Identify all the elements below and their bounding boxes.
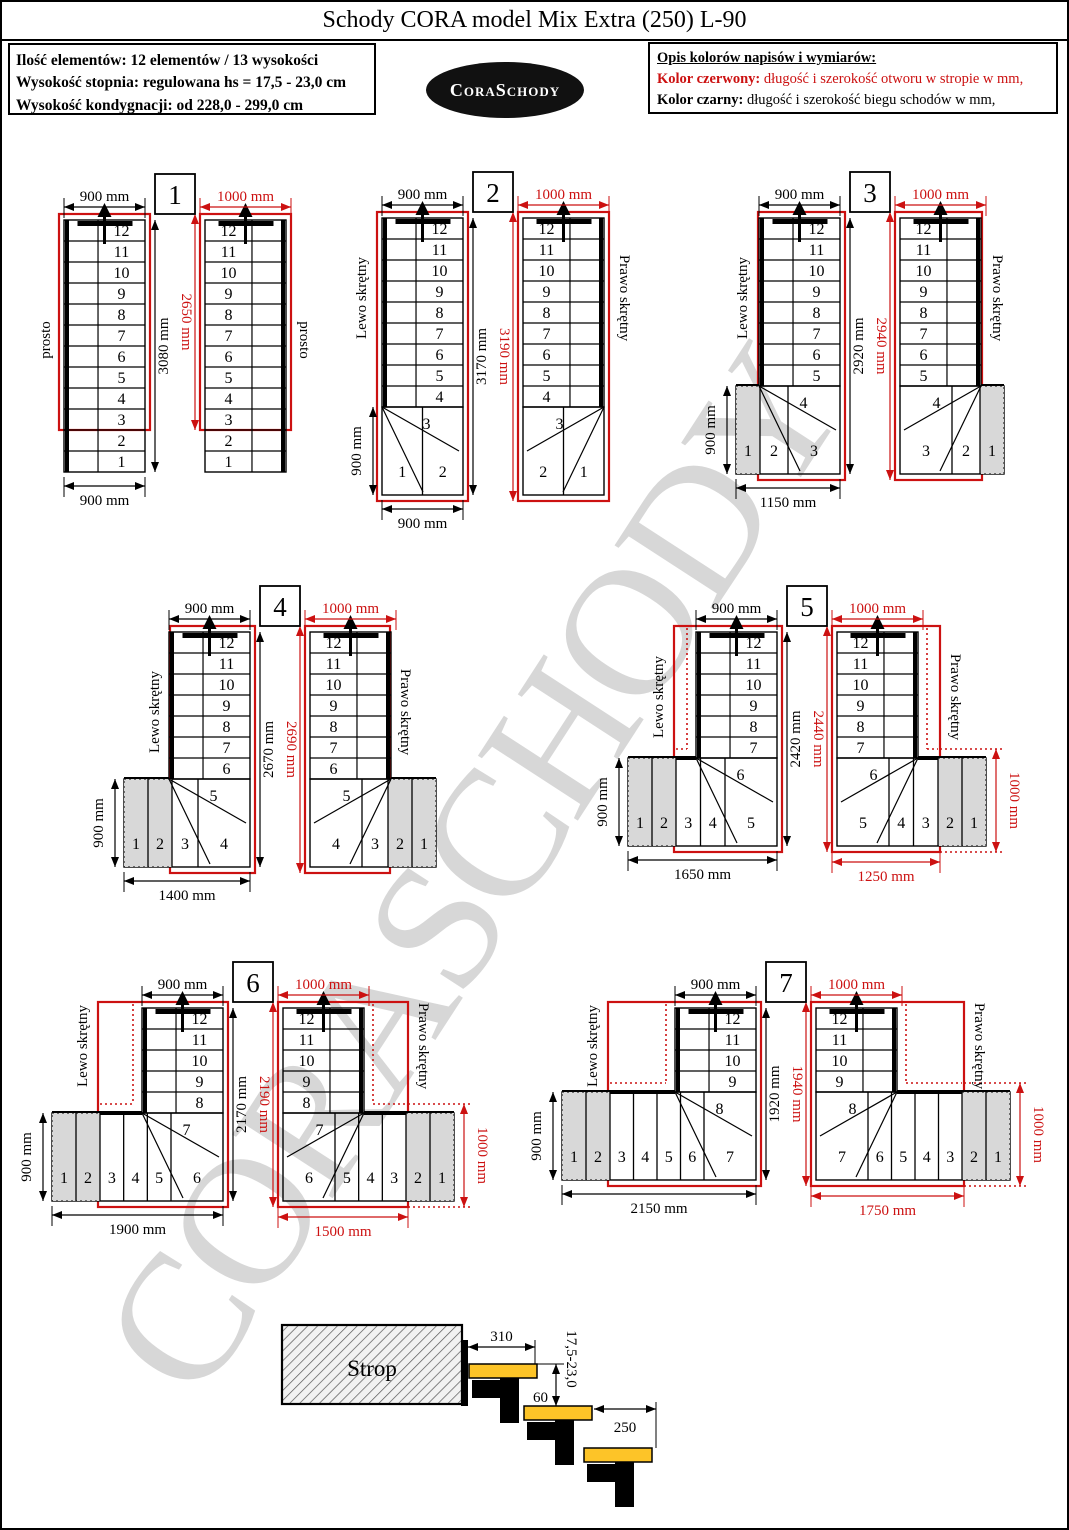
svg-text:5: 5 [859, 815, 867, 832]
svg-text:8: 8 [813, 305, 821, 322]
svg-text:8: 8 [224, 307, 232, 324]
svg-text:11: 11 [432, 242, 447, 259]
svg-text:8: 8 [542, 305, 550, 322]
svg-text:Lewo skrętny: Lewo skrętny [75, 1004, 91, 1087]
svg-text:2: 2 [970, 1149, 978, 1166]
svg-text:Lewo skrętny: Lewo skrętny [354, 256, 370, 339]
svg-text:8: 8 [302, 1095, 310, 1112]
svg-text:3: 3 [108, 1170, 116, 1187]
svg-text:9: 9 [196, 1074, 204, 1091]
legend-box: Opis kolorów napisów i wymiarów: Kolor c… [648, 42, 1058, 114]
svg-text:2440 mm: 2440 mm [810, 710, 826, 767]
svg-text:5: 5 [899, 1149, 907, 1166]
svg-text:6: 6 [118, 349, 126, 366]
svg-text:2: 2 [156, 836, 164, 853]
stair-diagram-6: 121110981234567900 mm1900 mm900 mm2170 m… [24, 958, 524, 1270]
svg-text:1: 1 [398, 464, 406, 481]
svg-text:3: 3 [224, 412, 232, 429]
svg-text:9: 9 [224, 286, 232, 303]
info-box: Ilość elementów: 12 elementów / 13 wysok… [8, 43, 376, 115]
left-stair: 121110987123456900 mm1650 mm900 mm2420 m… [595, 601, 831, 883]
svg-text:4: 4 [436, 389, 444, 406]
svg-text:3: 3 [922, 815, 930, 832]
svg-text:1: 1 [994, 1149, 1002, 1166]
svg-text:2: 2 [414, 1170, 422, 1187]
stair-diagram-3: 121110987651234900 mm1150 mm900 mm2920 m… [708, 168, 1060, 544]
svg-text:900 mm: 900 mm [398, 516, 448, 532]
svg-text:11: 11 [326, 656, 341, 673]
svg-text:11: 11 [539, 242, 554, 259]
svg-text:7: 7 [813, 326, 821, 343]
svg-text:3080 mm: 3080 mm [156, 317, 172, 374]
svg-text:4: 4 [897, 815, 905, 832]
svg-text:4: 4 [367, 1170, 375, 1187]
svg-text:5: 5 [665, 1149, 673, 1166]
svg-text:1: 1 [744, 443, 752, 460]
left-stair: 121110981234567900 mm1900 mm900 mm2170 m… [19, 977, 277, 1238]
svg-text:1000 mm: 1000 mm [849, 601, 906, 617]
svg-text:11: 11 [299, 1032, 314, 1049]
svg-text:7: 7 [223, 740, 231, 757]
svg-text:5: 5 [224, 370, 232, 387]
svg-text:900 mm: 900 mm [398, 187, 448, 203]
svg-text:3: 3 [922, 443, 930, 460]
svg-text:7: 7 [224, 328, 232, 345]
svg-text:1: 1 [420, 836, 428, 853]
svg-text:8: 8 [919, 305, 927, 322]
svg-text:8: 8 [118, 307, 126, 324]
svg-text:1: 1 [570, 1149, 578, 1166]
svg-text:Prawo skrętny: Prawo skrętny [397, 669, 413, 756]
svg-text:Lewo skrętny: Lewo skrętny [651, 655, 667, 738]
svg-text:1150 mm: 1150 mm [760, 495, 817, 511]
svg-text:6: 6 [193, 1170, 201, 1187]
legend-heading: Opis kolorów napisów i wymiarów: [657, 48, 1049, 69]
svg-text:10: 10 [219, 677, 235, 694]
svg-text:Lewo skrętny: Lewo skrętny [585, 1004, 601, 1087]
svg-text:1: 1 [118, 454, 126, 471]
svg-text:10: 10 [915, 263, 931, 280]
svg-text:17,5-23,0: 17,5-23,0 [563, 1330, 579, 1388]
svg-text:2670 mm: 2670 mm [261, 721, 277, 778]
drawing-page: Schody CORA model Mix Extra (250) L-90 I… [0, 0, 1069, 1530]
svg-text:3: 3 [810, 443, 818, 460]
svg-text:4: 4 [332, 836, 340, 853]
diagram-number-box: 4 [260, 586, 300, 626]
svg-text:4: 4 [273, 592, 287, 622]
svg-text:3: 3 [946, 1149, 954, 1166]
svg-text:6: 6 [813, 347, 821, 364]
svg-text:2: 2 [594, 1149, 602, 1166]
svg-text:10: 10 [325, 677, 341, 694]
section-view: Strop3106017,5-23,0250 [282, 1325, 656, 1507]
svg-text:2420 mm: 2420 mm [788, 710, 804, 767]
svg-text:10: 10 [725, 1053, 741, 1070]
svg-text:900 mm: 900 mm [595, 777, 611, 827]
svg-text:10: 10 [220, 265, 236, 282]
svg-text:11: 11 [746, 656, 761, 673]
svg-text:8: 8 [196, 1095, 204, 1112]
info-line-step-height: Wysokość stopnia: regulowana hs = 17,5 -… [16, 72, 368, 94]
svg-text:prosto: prosto [38, 321, 54, 359]
svg-text:900 mm: 900 mm [80, 493, 130, 509]
svg-text:10: 10 [432, 263, 448, 280]
svg-text:2170 mm: 2170 mm [234, 1076, 250, 1133]
svg-text:4: 4 [923, 1149, 931, 1166]
svg-text:Prawo skrętny: Prawo skrętny [989, 255, 1005, 342]
diagram-number-box: 5 [787, 586, 827, 626]
svg-text:60: 60 [533, 1390, 548, 1406]
svg-text:1500 mm: 1500 mm [314, 1224, 371, 1240]
svg-text:5: 5 [813, 368, 821, 385]
svg-text:1000 mm: 1000 mm [828, 977, 885, 993]
svg-text:8: 8 [223, 719, 231, 736]
svg-text:1650 mm: 1650 mm [674, 867, 731, 883]
svg-text:1000 mm: 1000 mm [1030, 1106, 1046, 1163]
svg-text:2150 mm: 2150 mm [630, 1201, 687, 1217]
svg-text:7: 7 [779, 968, 793, 998]
svg-text:7: 7 [919, 326, 927, 343]
svg-text:11: 11 [114, 244, 129, 261]
svg-text:8: 8 [436, 305, 444, 322]
left-stair: 121110987654123900 mm900 mm900 mm3170 mm… [349, 187, 517, 532]
svg-text:900 mm: 900 mm [703, 405, 719, 455]
legend-red-line: Kolor czerwony: długość i szerokość otwo… [657, 69, 1049, 90]
svg-text:7: 7 [542, 326, 550, 343]
svg-text:5: 5 [436, 368, 444, 385]
svg-text:1: 1 [60, 1170, 68, 1187]
svg-text:6: 6 [876, 1149, 884, 1166]
svg-text:5: 5 [155, 1170, 163, 1187]
svg-text:9: 9 [729, 1074, 737, 1091]
svg-text:1: 1 [132, 836, 140, 853]
svg-text:1000 mm: 1000 mm [535, 187, 592, 203]
page-title: Schody CORA model Mix Extra (250) L-90 [2, 2, 1067, 41]
stair-diagram-1: 121110987654321900 mm900 mm3080 mm2650 m… [32, 170, 332, 546]
diagram-number-box: 1 [155, 174, 195, 214]
svg-text:4: 4 [118, 391, 126, 408]
svg-text:9: 9 [835, 1074, 843, 1091]
svg-text:1920 mm: 1920 mm [767, 1065, 783, 1122]
svg-text:11: 11 [809, 242, 824, 259]
svg-text:5: 5 [343, 1170, 351, 1187]
left-stair: 121110987651234900 mm1150 mm900 mm2920 m… [703, 187, 894, 511]
svg-text:Prawo skrętny: Prawo skrętny [415, 1003, 431, 1090]
svg-text:Prawo skrętny: Prawo skrętny [616, 255, 632, 342]
svg-text:11: 11 [916, 242, 931, 259]
info-line-storey-height: Wysokość kondygnacji: od 228,0 - 299,0 c… [16, 95, 368, 117]
legend-black-line: Kolor czarny: długość i szerokość biegu … [657, 90, 1049, 111]
svg-text:Lewo skrętny: Lewo skrętny [147, 670, 163, 753]
svg-text:7: 7 [856, 740, 864, 757]
svg-text:10: 10 [809, 263, 825, 280]
svg-text:7: 7 [118, 328, 126, 345]
svg-text:11: 11 [853, 656, 868, 673]
svg-text:2690 mm: 2690 mm [283, 721, 299, 778]
svg-text:4: 4 [220, 836, 228, 853]
svg-text:3: 3 [618, 1149, 626, 1166]
svg-text:2: 2 [962, 443, 970, 460]
svg-text:2: 2 [118, 433, 126, 450]
svg-text:1: 1 [970, 815, 978, 832]
svg-text:11: 11 [219, 656, 234, 673]
svg-text:9: 9 [813, 284, 821, 301]
svg-text:4: 4 [641, 1149, 649, 1166]
diagram-number-box: 7 [766, 962, 806, 1002]
svg-text:1000 mm: 1000 mm [1006, 772, 1022, 829]
svg-text:Lewo skrętny: Lewo skrętny [735, 256, 751, 339]
svg-text:Prawo skrętny: Prawo skrętny [947, 654, 963, 741]
svg-text:3: 3 [390, 1170, 398, 1187]
svg-text:3: 3 [371, 836, 379, 853]
svg-text:4: 4 [542, 389, 550, 406]
svg-text:6: 6 [542, 347, 550, 364]
svg-text:Strop: Strop [347, 1356, 397, 1381]
svg-text:Prawo skrętny: Prawo skrętny [971, 1003, 987, 1090]
stair-diagram-4: 121110987612345900 mm1400 mm900 mm2670 m… [96, 582, 464, 918]
svg-text:7: 7 [329, 740, 337, 757]
svg-text:3: 3 [863, 178, 877, 208]
svg-text:900 mm: 900 mm [712, 601, 762, 617]
svg-text:2940 mm: 2940 mm [873, 317, 889, 374]
svg-text:3: 3 [181, 836, 189, 853]
svg-text:5: 5 [747, 815, 755, 832]
svg-text:1000 mm: 1000 mm [912, 187, 969, 203]
left-stair: 121110912345678900 mm2150 mm900 mm1920 m… [529, 977, 810, 1217]
svg-text:11: 11 [192, 1032, 207, 1049]
svg-text:900 mm: 900 mm [529, 1111, 545, 1161]
svg-text:9: 9 [856, 698, 864, 715]
svg-text:900 mm: 900 mm [19, 1132, 35, 1182]
svg-text:9: 9 [118, 286, 126, 303]
svg-text:9: 9 [750, 698, 758, 715]
svg-text:9: 9 [436, 284, 444, 301]
svg-text:4: 4 [709, 815, 717, 832]
svg-text:2: 2 [770, 443, 778, 460]
svg-text:8: 8 [856, 719, 864, 736]
svg-text:2190 mm: 2190 mm [256, 1076, 272, 1133]
svg-text:2: 2 [224, 433, 232, 450]
svg-text:2: 2 [84, 1170, 92, 1187]
svg-text:8: 8 [329, 719, 337, 736]
svg-text:900 mm: 900 mm [691, 977, 741, 993]
svg-text:10: 10 [298, 1053, 314, 1070]
svg-text:7: 7 [838, 1149, 846, 1166]
svg-text:900 mm: 900 mm [91, 798, 107, 848]
svg-text:3170 mm: 3170 mm [474, 328, 490, 385]
svg-text:3: 3 [684, 815, 692, 832]
diagram-number-box: 6 [233, 962, 273, 1002]
diagram-number-box: 2 [473, 172, 513, 212]
left-stair: 121110987654321900 mm900 mm3080 mm2650 m… [38, 189, 199, 509]
svg-text:2: 2 [486, 178, 500, 208]
svg-text:1000 mm: 1000 mm [322, 601, 379, 617]
svg-text:1: 1 [988, 443, 996, 460]
svg-text:2650 mm: 2650 mm [178, 293, 194, 350]
stair-diagram-2: 121110987654123900 mm900 mm900 mm3170 mm… [354, 168, 662, 548]
svg-text:6: 6 [224, 349, 232, 366]
svg-text:1: 1 [168, 180, 182, 210]
svg-text:9: 9 [919, 284, 927, 301]
svg-text:1400 mm: 1400 mm [158, 888, 215, 904]
svg-text:11: 11 [725, 1032, 740, 1049]
svg-text:900 mm: 900 mm [158, 977, 208, 993]
right-stair: 1211109876532141000 mmPrawo skrętny [895, 187, 1005, 480]
svg-text:10: 10 [746, 677, 762, 694]
svg-text:10: 10 [831, 1053, 847, 1070]
svg-text:5: 5 [919, 368, 927, 385]
svg-text:7: 7 [726, 1149, 734, 1166]
cora-schody-logo: CoraSchody [426, 62, 584, 118]
svg-text:10: 10 [114, 265, 130, 282]
info-line-elements: Ilość elementów: 12 elementów / 13 wysok… [16, 50, 368, 72]
svg-text:2: 2 [539, 464, 547, 481]
svg-text:9: 9 [223, 698, 231, 715]
svg-text:6: 6 [305, 1170, 313, 1187]
svg-text:7: 7 [436, 326, 444, 343]
svg-text:11: 11 [221, 244, 236, 261]
svg-text:5: 5 [118, 370, 126, 387]
svg-text:2920 mm: 2920 mm [851, 317, 867, 374]
svg-text:5: 5 [800, 592, 814, 622]
svg-text:10: 10 [852, 677, 868, 694]
svg-text:900 mm: 900 mm [185, 601, 235, 617]
svg-text:250: 250 [614, 1420, 637, 1436]
svg-text:8: 8 [750, 719, 758, 736]
right-stair: 1211109875432161000 mm1250 mm1000 mmPraw… [832, 601, 1022, 885]
svg-text:3190 mm: 3190 mm [496, 328, 512, 385]
right-stair: 1211109765432181000 mm1750 mm1000 mmPraw… [811, 977, 1046, 1219]
svg-text:7: 7 [750, 740, 758, 757]
svg-text:900 mm: 900 mm [80, 189, 130, 205]
right-stair: 1211109876543211000 mmprosto [200, 189, 312, 472]
svg-text:2: 2 [946, 815, 954, 832]
right-stair: 1211109865432171000 mm1500 mm1000 mmPraw… [278, 977, 490, 1240]
svg-text:900 mm: 900 mm [775, 187, 825, 203]
svg-text:1: 1 [224, 454, 232, 471]
svg-text:310: 310 [490, 1329, 513, 1345]
svg-text:4: 4 [224, 391, 232, 408]
svg-text:5: 5 [542, 368, 550, 385]
svg-text:11: 11 [832, 1032, 847, 1049]
svg-text:6: 6 [688, 1149, 696, 1166]
svg-text:6: 6 [919, 347, 927, 364]
svg-text:6: 6 [246, 968, 260, 998]
stair-diagram-7: 121110912345678900 mm2150 mm900 mm1920 m… [534, 958, 1069, 1270]
svg-text:6: 6 [223, 761, 231, 778]
svg-text:9: 9 [542, 284, 550, 301]
stair-diagram-5: 121110987123456900 mm1650 mm900 mm2420 m… [600, 582, 1034, 922]
svg-text:1000 mm: 1000 mm [295, 977, 352, 993]
svg-text:1940 mm: 1940 mm [789, 1065, 805, 1122]
svg-text:6: 6 [329, 761, 337, 778]
svg-text:1000 mm: 1000 mm [474, 1127, 490, 1184]
svg-text:1900 mm: 1900 mm [109, 1222, 166, 1238]
left-stair: 121110987612345900 mm1400 mm900 mm2670 m… [91, 601, 304, 904]
svg-text:9: 9 [302, 1074, 310, 1091]
svg-text:2: 2 [396, 836, 404, 853]
right-stair: 1211109876432151000 mmPrawo skrętny [305, 601, 436, 873]
svg-text:1: 1 [438, 1170, 446, 1187]
diagram-number-box: 3 [850, 172, 890, 212]
svg-text:1750 mm: 1750 mm [859, 1203, 916, 1219]
svg-text:900 mm: 900 mm [349, 426, 365, 476]
svg-text:1: 1 [636, 815, 644, 832]
svg-text:10: 10 [192, 1053, 208, 1070]
svg-text:1250 mm: 1250 mm [857, 869, 914, 885]
svg-text:10: 10 [538, 263, 554, 280]
right-stair: 1211109876542131000 mmPrawo skrętny [518, 187, 632, 501]
svg-text:9: 9 [329, 698, 337, 715]
svg-text:1: 1 [580, 464, 588, 481]
svg-text:6: 6 [436, 347, 444, 364]
svg-text:2: 2 [439, 464, 447, 481]
svg-text:4: 4 [132, 1170, 140, 1187]
svg-text:1000 mm: 1000 mm [217, 189, 274, 205]
svg-text:2: 2 [660, 815, 668, 832]
svg-text:3: 3 [118, 412, 126, 429]
side-view: Strop3106017,5-23,0250 [252, 1292, 732, 1527]
svg-text:prosto: prosto [296, 321, 312, 359]
